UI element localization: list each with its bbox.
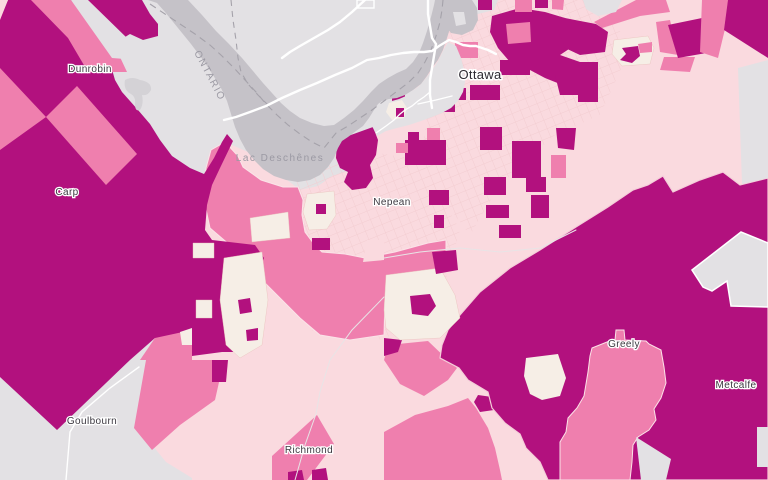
svg-text:Carp: Carp: [55, 187, 78, 198]
svg-text:Ottawa: Ottawa: [459, 67, 502, 82]
svg-text:Greely: Greely: [608, 339, 640, 350]
svg-text:Nepean: Nepean: [373, 197, 410, 208]
svg-text:Metcalfe: Metcalfe: [716, 380, 757, 391]
svg-text:Goulbourn: Goulbourn: [67, 416, 117, 427]
svg-text:Lac Deschênes: Lac Deschênes: [236, 153, 324, 164]
svg-text:Richmond: Richmond: [285, 445, 333, 456]
svg-text:Dunrobin: Dunrobin: [68, 64, 112, 75]
